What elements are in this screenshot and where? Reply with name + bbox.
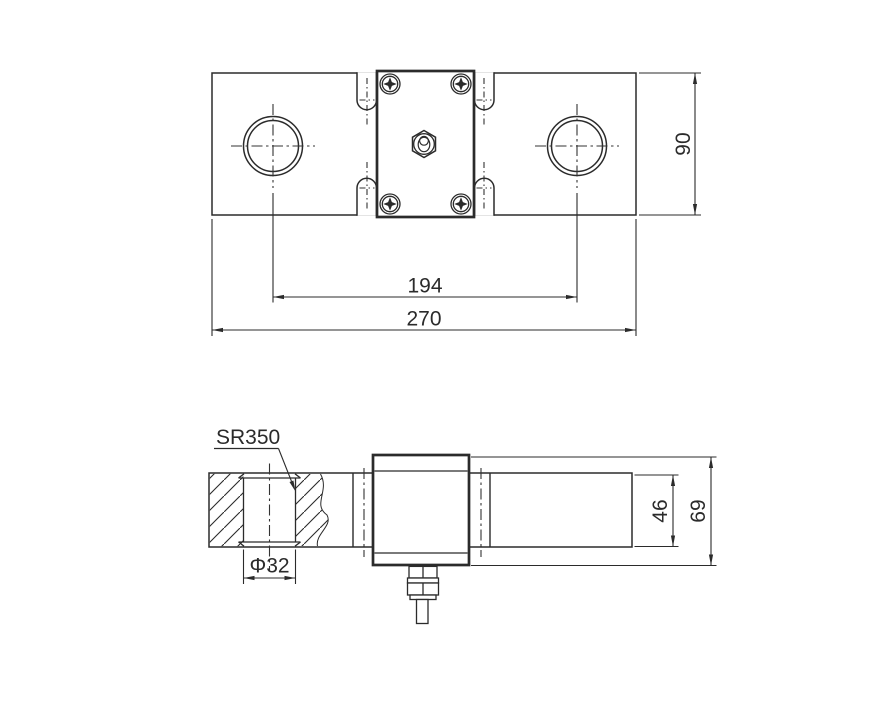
dim-label-width: 90	[672, 132, 695, 155]
side-view: SR350 Φ32 46	[209, 426, 717, 624]
notch-top-right	[475, 72, 495, 110]
arrowhead	[625, 328, 636, 332]
drawing-canvas: 194 270 90	[0, 0, 878, 711]
dim-label-overall-height: 69	[687, 499, 710, 522]
cable	[417, 600, 429, 624]
arrowhead	[709, 457, 713, 468]
junction-box-side	[373, 455, 469, 565]
arrowhead	[693, 204, 697, 215]
arrowhead	[566, 295, 577, 299]
notch-top-left	[357, 72, 377, 110]
arrowhead	[709, 555, 713, 566]
notch-bottom-left	[357, 178, 377, 216]
label-spherical-radius: SR350	[216, 426, 280, 449]
arrowhead	[212, 328, 223, 332]
arrowhead	[693, 73, 697, 84]
cable-gland-side	[408, 566, 439, 623]
dim-label-hole-spacing: 194	[407, 275, 442, 298]
dim-label-overall-length: 270	[406, 308, 441, 331]
notch-bottom-right	[475, 178, 495, 216]
junction-box-top	[377, 71, 474, 217]
arrowhead	[671, 475, 675, 486]
dimension-width: 90	[639, 73, 701, 215]
top-view: 194 270 90	[212, 71, 701, 336]
gland-segment	[410, 595, 436, 600]
junction-box-outline	[377, 71, 474, 217]
arrowhead	[273, 295, 284, 299]
arrowhead	[671, 536, 675, 547]
dim-label-bore-diameter: Φ32	[249, 555, 289, 578]
load-cell-drawing: 194 270 90	[0, 0, 878, 711]
gland-segment	[408, 578, 439, 583]
hatch-fill	[210, 474, 244, 546]
dim-label-beam-height: 46	[649, 499, 672, 522]
dimension-beam-height: 46	[635, 475, 679, 547]
dimension-bore-diameter: Φ32	[244, 550, 296, 585]
